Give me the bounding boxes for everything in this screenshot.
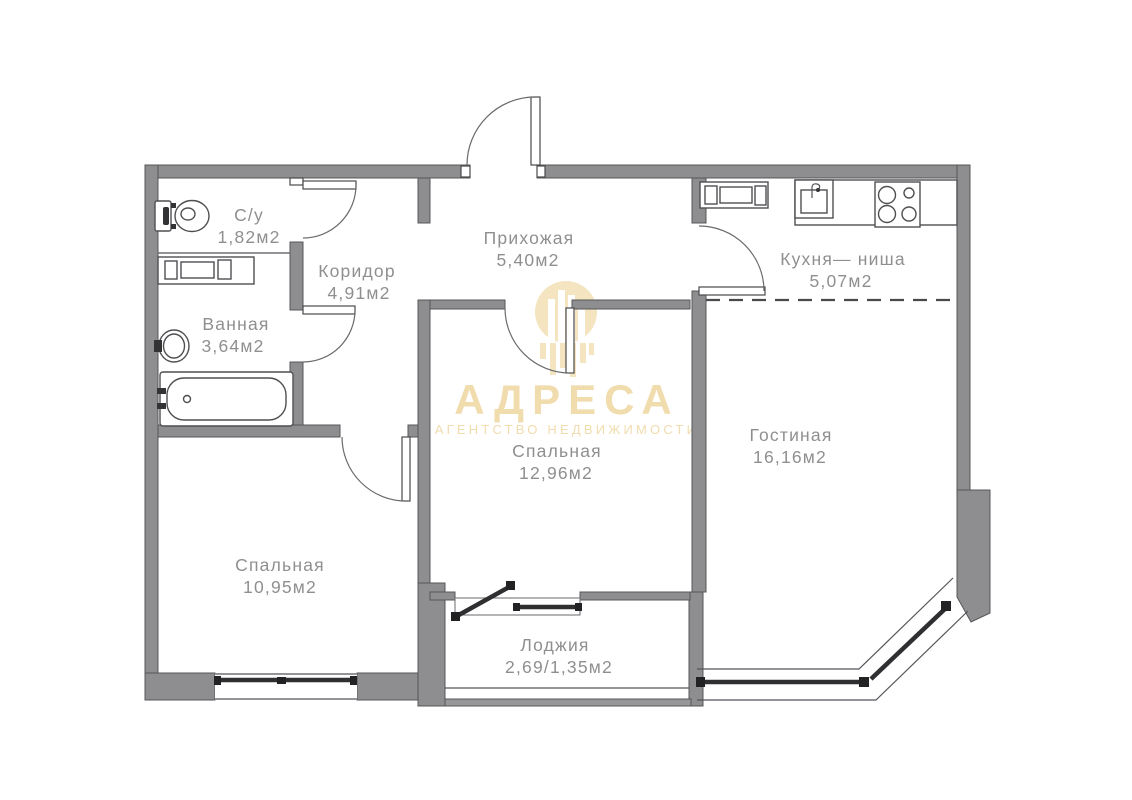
room-area-kitchen: 5,07м2: [809, 271, 872, 291]
room-name-living: Гостиная: [749, 425, 832, 445]
watermark-subtitle: АГЕНТСТВО НЕДВИЖИМОСТИ: [435, 422, 699, 437]
loggia-railing: [445, 699, 691, 706]
room-name-bedroom-middle: Спальная: [512, 441, 602, 461]
bay-window-icon: [696, 578, 968, 700]
kitchen-sink-icon: [795, 180, 833, 218]
bathtub-icon: [157, 372, 293, 426]
room-name-bathroom: Ванная: [202, 314, 269, 334]
bathroom-door-icon: [303, 306, 355, 362]
room-area-living: 16,16м2: [753, 447, 827, 467]
watermark-title: АДРЕСА: [454, 376, 679, 423]
stove-icon: [875, 182, 920, 227]
room-area-bathroom: 3,64м2: [201, 336, 264, 356]
entrance-door-icon: [461, 97, 545, 177]
room-name-bedroom-left: Спальная: [235, 555, 325, 575]
wc-door-icon: [290, 178, 356, 238]
bathroom-sink-icon: [154, 330, 189, 362]
room-name-kitchen: Кухня— ниша: [780, 249, 906, 269]
room-area-bedroom-left: 10,95м2: [243, 577, 317, 597]
room-area-loggia: 2,69/1,35м2: [505, 657, 613, 677]
washing-machine-icon: [158, 257, 254, 284]
room-name-loggia: Лоджия: [520, 635, 589, 655]
toilet-icon: [155, 201, 209, 232]
room-area-bedroom-middle: 12,96м2: [519, 463, 593, 483]
bedroom-left-door-icon: [342, 437, 410, 501]
floor-plan-drawing: АДРЕСА АГЕНТСТВО НЕДВИЖИМОСТИ: [0, 0, 1132, 800]
room-name-hallway: Прихожая: [484, 228, 575, 248]
room-area-hallway: 5,40м2: [496, 250, 559, 270]
bedroom-left-window-icon: [214, 673, 357, 700]
room-name-corridor: Коридор: [318, 261, 396, 281]
room-name-wc: С/у: [234, 205, 264, 225]
room-area-corridor: 4,91м2: [327, 283, 390, 303]
kitchen-cabinet-icon: [700, 182, 768, 208]
room-area-wc: 1,82м2: [217, 227, 280, 247]
kitchen-door-icon: [699, 226, 765, 295]
floor-plan-page: АДРЕСА АГЕНТСТВО НЕДВИЖИМОСТИ: [0, 0, 1132, 800]
bay-pillar: [957, 490, 990, 622]
